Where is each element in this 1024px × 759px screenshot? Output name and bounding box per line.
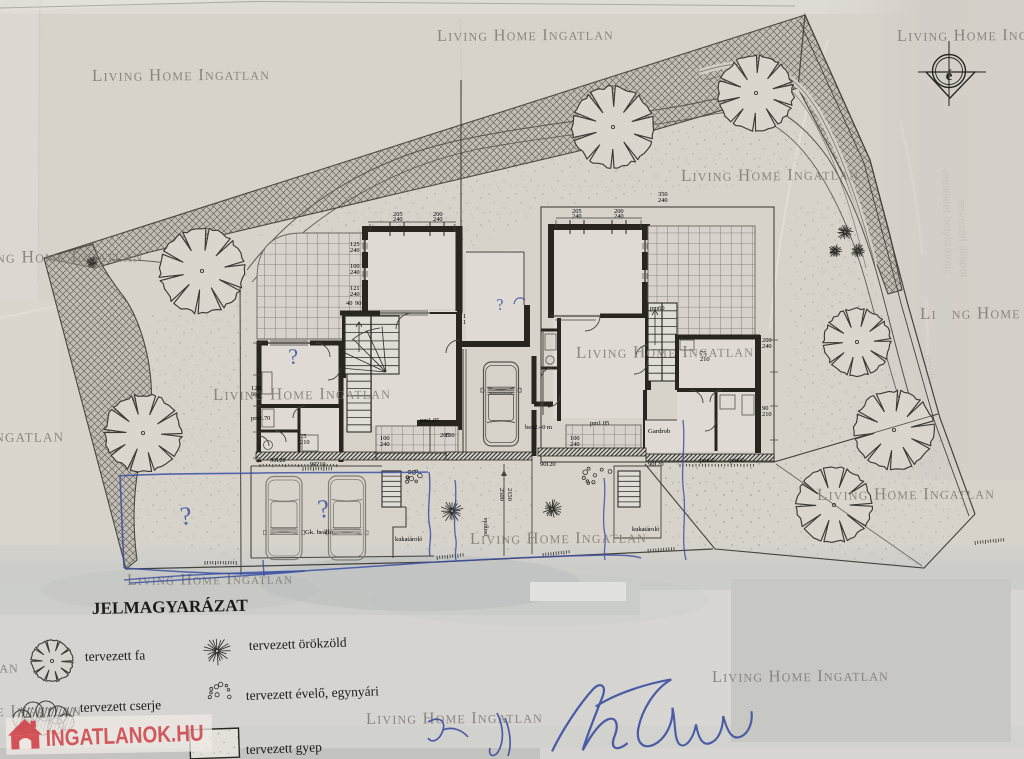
svg-text:Living Home Ingatlan: Living Home Ingatlan	[0, 425, 64, 448]
svg-text:Living Home Ingatlan: Living Home Ingatlan	[920, 302, 1024, 323]
svg-text:kukatároló: kukatároló	[395, 536, 422, 543]
svg-text:Living Home Ingatlan: Living Home Ingatlan	[470, 527, 647, 548]
svg-text:Living Home Ingatlan: Living Home Ingatlan	[213, 383, 391, 404]
svg-text:tervezett gyep: tervezett gyep	[246, 739, 323, 757]
svg-text:pm60: pm60	[700, 457, 715, 464]
svg-text:Gardrob: Gardrob	[648, 428, 671, 435]
svg-text:?: ?	[496, 296, 505, 314]
svg-text:40: 40	[346, 300, 352, 307]
svg-text:240: 240	[570, 441, 580, 448]
svg-text:pm60: pm60	[730, 457, 745, 464]
svg-text:pm1.05: pm1.05	[590, 420, 609, 427]
svg-text:2500: 2500	[498, 488, 505, 501]
svg-text:240: 240	[350, 269, 360, 276]
svg-text:120: 120	[654, 461, 664, 468]
svg-text:Living Home Ingatlan: Living Home Ingatlan	[681, 164, 859, 185]
svg-text:Living Home Ingatlan: Living Home Ingatlan	[366, 707, 543, 728]
svg-text:Living Home Ingatlan: Living Home Ingatlan	[897, 24, 1024, 45]
svg-text:240: 240	[380, 441, 390, 448]
svg-text:tervezett cserje: tervezett cserje	[80, 697, 162, 715]
svg-text:90: 90	[355, 300, 361, 307]
svg-text:2150: 2150	[506, 488, 513, 501]
svg-text:Living Home Ingatlan: Living Home Ingatlan	[0, 245, 143, 267]
svg-text:90: 90	[540, 461, 546, 468]
svg-text:INGATLANOK.HU: INGATLANOK.HU	[45, 719, 204, 750]
svg-text:210: 210	[762, 411, 772, 418]
svg-text:?: ?	[288, 343, 299, 369]
svg-text:Living Home Ingatlan: Living Home Ingatlan	[0, 657, 19, 678]
svg-text:150: 150	[445, 432, 455, 439]
svg-text:240: 240	[350, 291, 360, 298]
svg-text:tervezett fa: tervezett fa	[85, 647, 146, 664]
svg-text:pm60: pm60	[650, 305, 665, 312]
svg-text:Living Home Ingatlan: Living Home Ingatlan	[92, 64, 270, 85]
svg-text:épület: épület	[922, 355, 935, 385]
svg-text:210: 210	[300, 439, 310, 446]
svg-text:Living Home Ingatlan: Living Home Ingatlan	[817, 483, 995, 504]
svg-text:240: 240	[350, 247, 360, 254]
svg-text:Gk. beálló: Gk. beálló	[305, 529, 334, 536]
svg-text:JELMAGYARÁZAT: JELMAGYARÁZAT	[92, 596, 249, 618]
svg-text:é: é	[946, 68, 953, 84]
svg-text:120: 120	[546, 461, 556, 468]
svg-text:ben2.40 m: ben2.40 m	[525, 424, 552, 431]
svg-text:pm1.05: pm1.05	[420, 417, 439, 424]
svg-text:240: 240	[658, 197, 668, 204]
svg-text:90: 90	[648, 461, 654, 468]
svg-text:pm1.70: pm1.70	[251, 415, 270, 422]
svg-text:240: 240	[572, 213, 582, 220]
svg-text:240: 240	[762, 343, 772, 350]
svg-text:240: 240	[614, 213, 624, 220]
svg-text:90: 90	[270, 457, 276, 464]
svg-text:Living Home Ingatlan: Living Home Ingatlan	[576, 341, 754, 362]
svg-text:Living Home Ingatlan: Living Home Ingatlan	[437, 24, 614, 45]
svg-text:120: 120	[276, 457, 286, 464]
svg-text:Living Home Ingatlan: Living Home Ingatlan	[712, 665, 889, 686]
